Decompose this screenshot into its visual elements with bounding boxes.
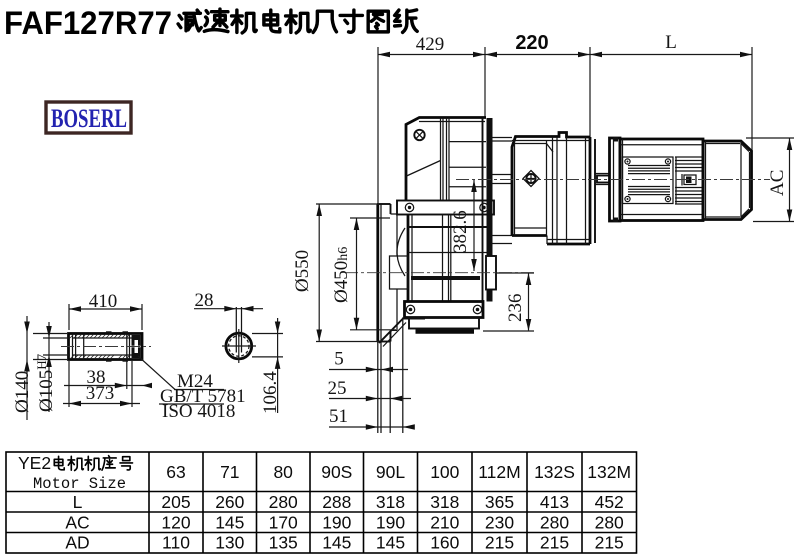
svg-text:429: 429: [416, 34, 445, 55]
svg-text:L: L: [73, 492, 83, 512]
svg-text:90S: 90S: [321, 462, 352, 482]
svg-text:373: 373: [86, 383, 115, 404]
svg-text:190: 190: [376, 513, 405, 533]
svg-text:ISO 4018: ISO 4018: [162, 401, 235, 422]
svg-text:318: 318: [376, 492, 405, 512]
svg-text:Motor Size: Motor Size: [33, 475, 126, 493]
svg-text:Ø140: Ø140: [12, 371, 33, 413]
svg-text:215: 215: [595, 533, 624, 553]
svg-text:25: 25: [328, 378, 347, 399]
svg-text:280: 280: [595, 513, 624, 533]
svg-text:145: 145: [215, 513, 244, 533]
svg-text:382.6: 382.6: [450, 210, 471, 253]
svg-text:AC: AC: [767, 170, 788, 196]
svg-text:145: 145: [322, 533, 351, 553]
svg-text:365: 365: [485, 492, 514, 512]
svg-text:100: 100: [430, 462, 459, 482]
svg-text:AD: AD: [65, 533, 89, 553]
svg-text:Ø550: Ø550: [292, 250, 313, 292]
svg-text:80: 80: [273, 462, 293, 482]
svg-text:452: 452: [595, 492, 624, 512]
svg-text:FAF127R77: FAF127R77: [4, 5, 172, 41]
svg-text:71: 71: [220, 462, 239, 482]
svg-text:130: 130: [215, 533, 244, 553]
svg-text:90L: 90L: [376, 462, 405, 482]
svg-text:L: L: [665, 32, 677, 53]
svg-text:215: 215: [540, 533, 569, 553]
svg-text:106.4: 106.4: [260, 371, 281, 414]
svg-text:AC: AC: [65, 513, 89, 533]
svg-text:160: 160: [430, 533, 459, 553]
svg-text:318: 318: [430, 492, 459, 512]
svg-text:28: 28: [195, 290, 214, 311]
svg-text:132M: 132M: [587, 462, 631, 482]
svg-text:280: 280: [269, 492, 298, 512]
svg-text:63: 63: [166, 462, 185, 482]
svg-text:120: 120: [161, 513, 190, 533]
svg-text:170: 170: [269, 513, 298, 533]
svg-text:51: 51: [329, 406, 348, 427]
svg-text:236: 236: [505, 294, 526, 323]
svg-text:190: 190: [322, 513, 351, 533]
svg-text:288: 288: [322, 492, 351, 512]
svg-text:280: 280: [540, 513, 569, 533]
svg-text:260: 260: [215, 492, 244, 512]
svg-text:210: 210: [430, 513, 459, 533]
svg-text:132S: 132S: [534, 462, 575, 482]
svg-text:BOSERL: BOSERL: [51, 104, 127, 133]
svg-text:410: 410: [89, 291, 118, 312]
svg-text:YE2: YE2: [18, 453, 51, 473]
svg-text:220: 220: [515, 32, 548, 54]
svg-text:145: 145: [376, 533, 405, 553]
svg-text:230: 230: [485, 513, 514, 533]
svg-text:205: 205: [161, 492, 190, 512]
svg-text:5: 5: [334, 349, 344, 370]
svg-text:215: 215: [485, 533, 514, 553]
svg-text:110: 110: [162, 533, 190, 553]
svg-text:135: 135: [269, 533, 298, 553]
svg-text:112M: 112M: [478, 462, 520, 482]
svg-text:413: 413: [540, 492, 569, 512]
